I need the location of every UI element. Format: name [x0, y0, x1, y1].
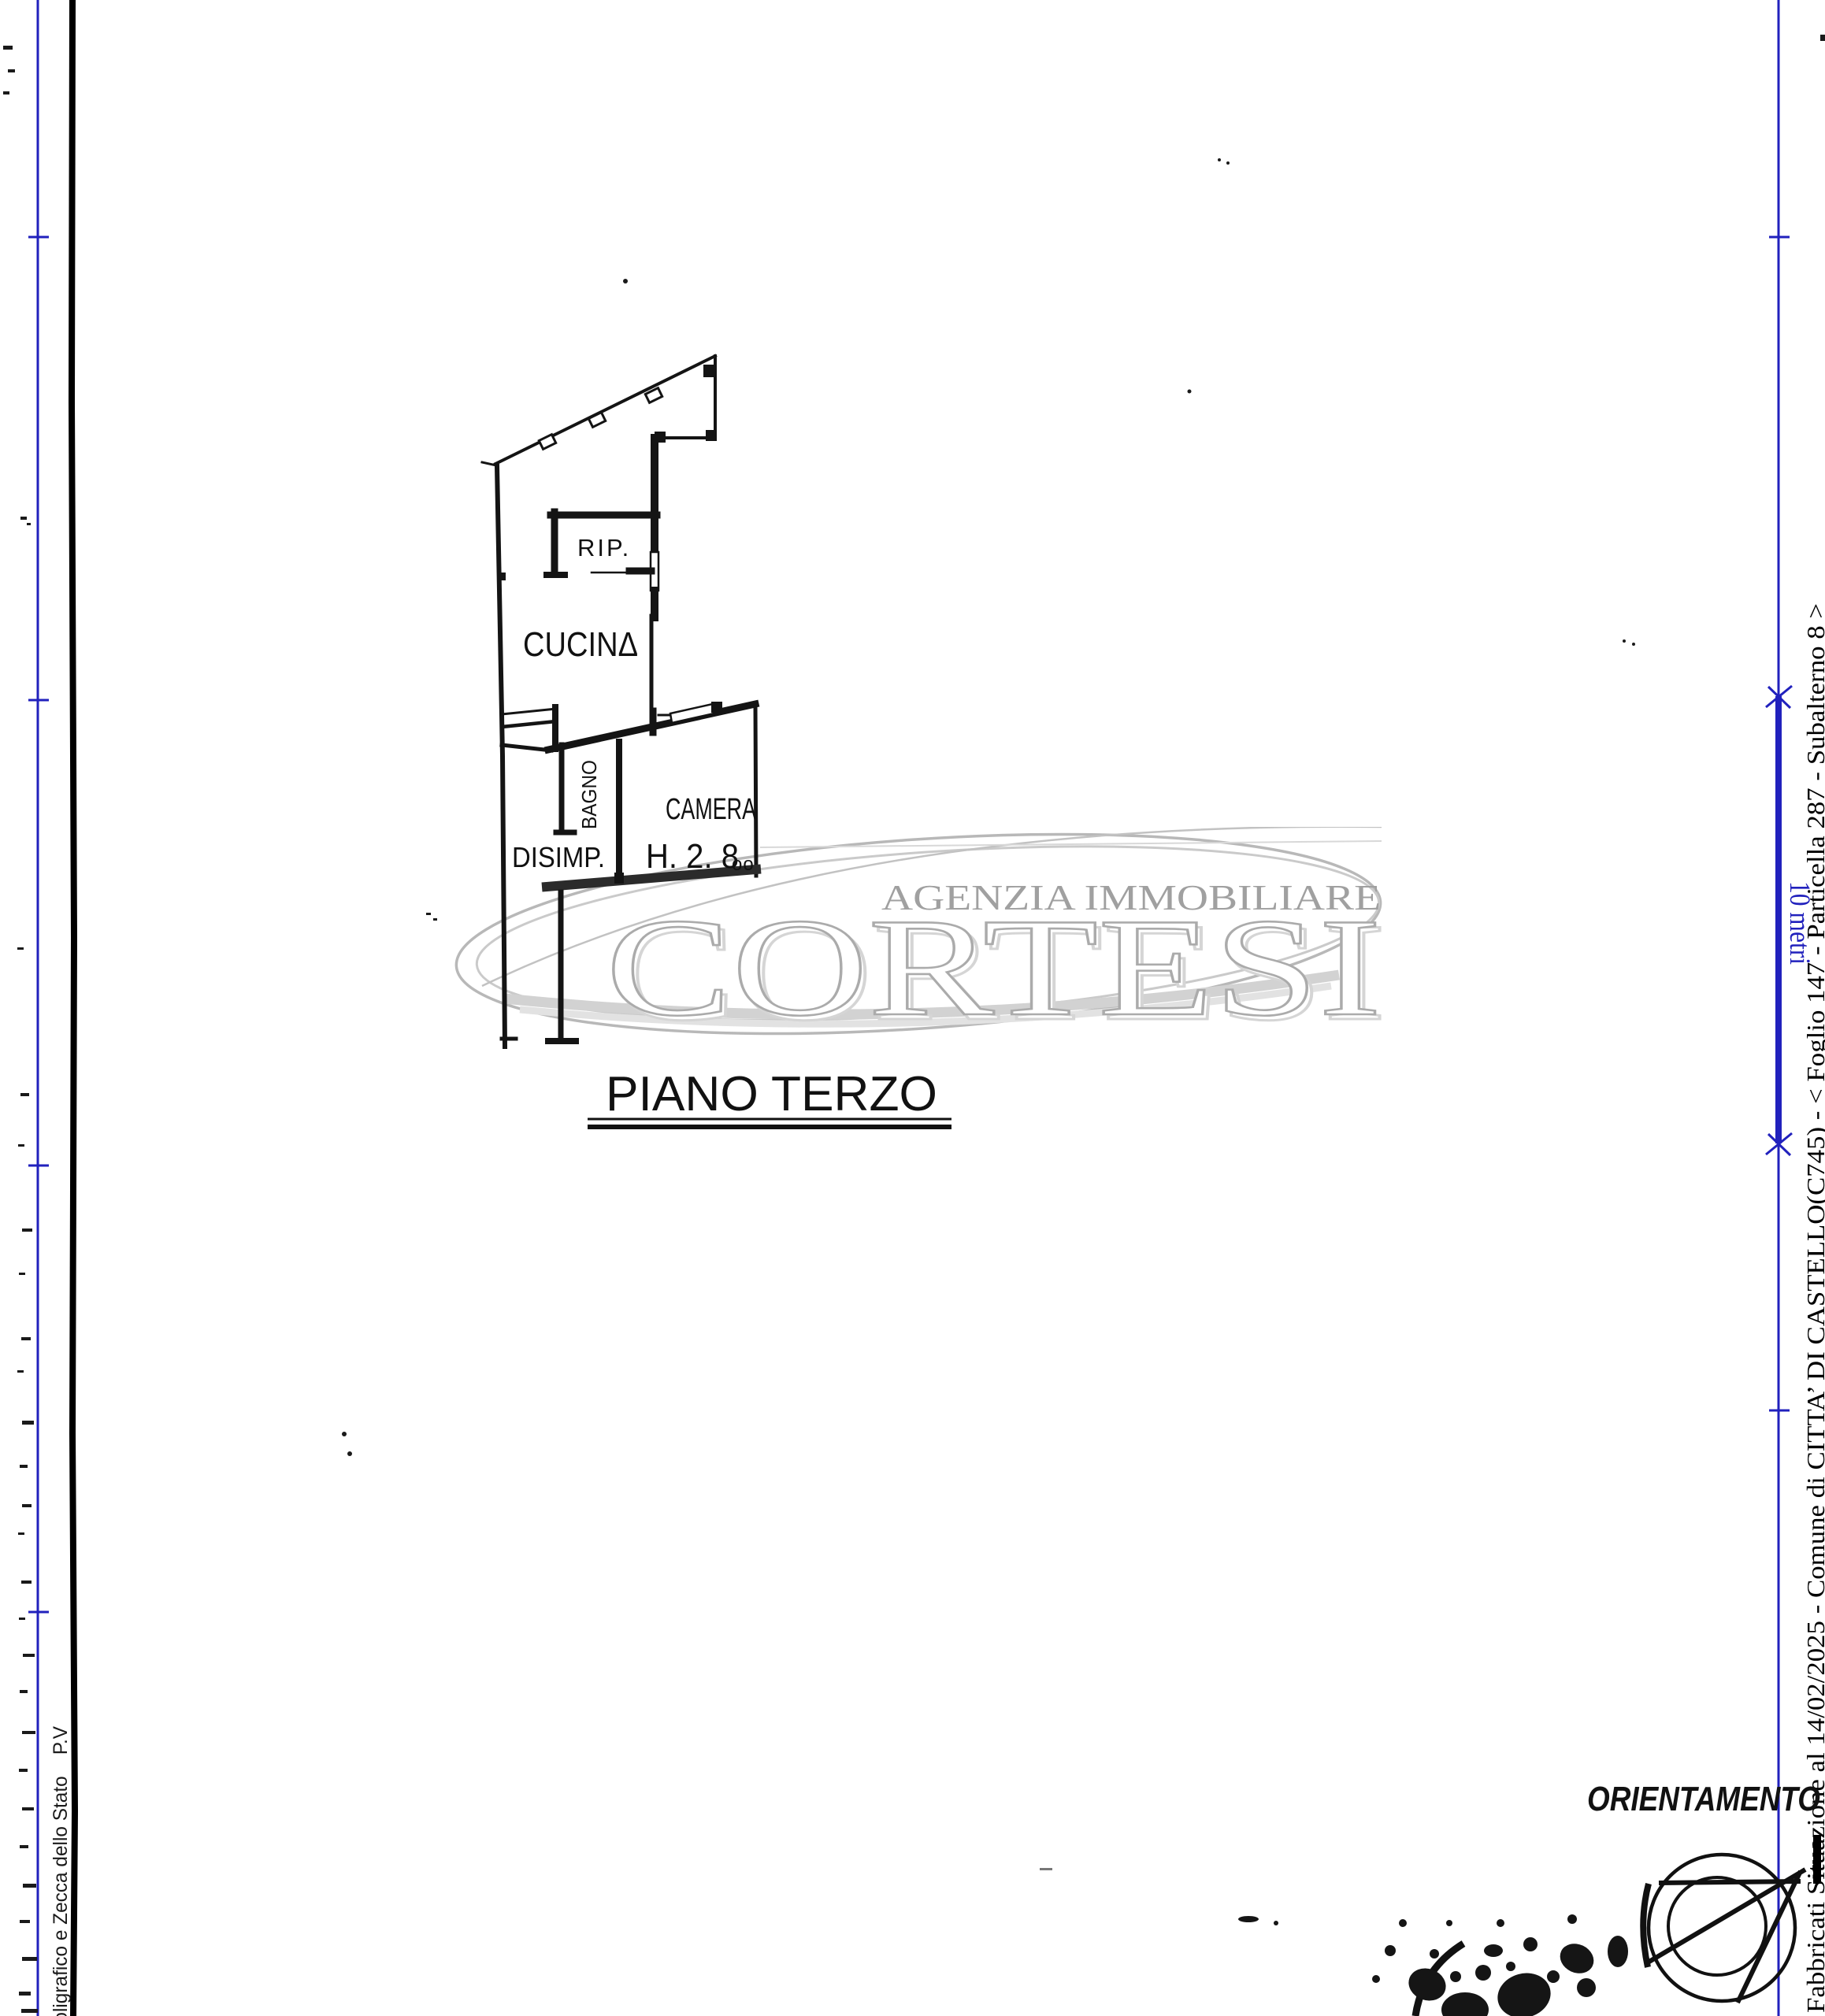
svg-text:H. 2. 8: H. 2. 8 — [646, 837, 739, 876]
svg-text:CORTESI: CORTESI — [606, 889, 1382, 1045]
svg-text:CAMERA: CAMERA — [666, 793, 756, 826]
svg-text:RIP.: RIP. — [577, 534, 631, 561]
svg-text:to Poligrafico e Zecca dello S: to Poligrafico e Zecca dello Stato P.V — [50, 1726, 72, 2016]
svg-text:ORIENTAMENTO: ORIENTAMENTO — [1587, 1780, 1820, 1818]
svg-text:PIANO TERZO: PIANO TERZO — [606, 1067, 937, 1121]
svg-text:DISIMP.: DISIMP. — [512, 841, 605, 873]
svg-text:oo: oo — [732, 854, 755, 875]
svg-text:CUCINΔ: CUCINΔ — [523, 625, 638, 664]
svg-text:BAGNO: BAGNO — [577, 760, 601, 829]
